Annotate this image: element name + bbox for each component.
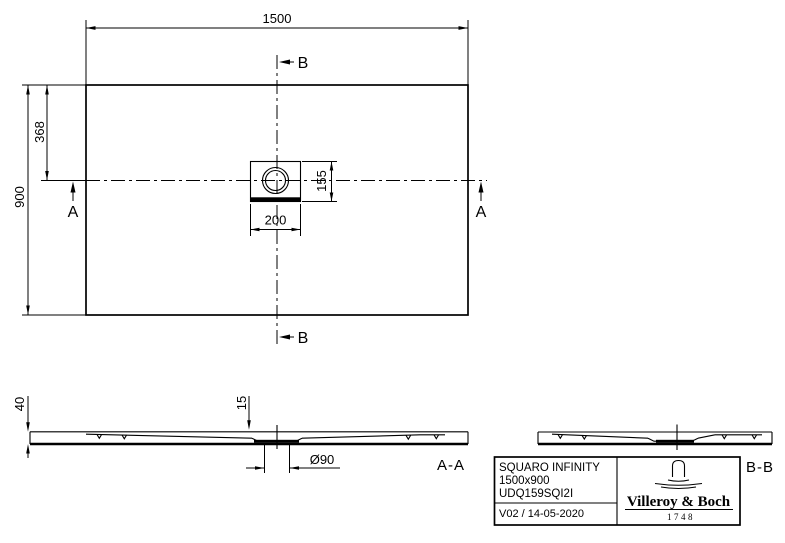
dim-d90-label: Ø90	[310, 452, 335, 467]
section-aa-view: 40 15 Ø90 A-A	[12, 396, 468, 474]
product-size: 1500x900	[499, 475, 550, 487]
dim-200-label: 200	[265, 213, 287, 228]
dim-15-label: 15	[234, 396, 249, 410]
brand-year: 1748	[667, 512, 695, 522]
dim-368: 368	[32, 85, 88, 181]
dim-40: 40	[12, 396, 30, 458]
dim-155-label: 155	[314, 170, 329, 192]
article-number: UDQ159SQI2I	[499, 488, 573, 500]
drain-recess-bar-bb	[656, 440, 694, 443]
dim-1500-label: 1500	[263, 11, 292, 26]
drawing-sheet: 1500 900 368 155	[0, 0, 785, 543]
drawing-svg: 1500 900 368 155	[0, 0, 785, 543]
dim-40-label: 40	[12, 397, 27, 411]
section-marker-b-bottom: B	[279, 330, 308, 347]
dim-200: 200	[251, 204, 301, 236]
logo-ripples-icon	[655, 480, 702, 489]
dim-155: 155	[302, 162, 337, 202]
dim-900-label: 900	[12, 186, 27, 208]
section-marker-a-left: A	[68, 182, 79, 222]
drain-channel-bar	[251, 197, 301, 201]
brand-name: Villeroy & Boch	[627, 494, 731, 510]
section-marker-a-right: A	[476, 182, 487, 222]
revision-date: V02 / 14-05-2020	[499, 508, 584, 520]
title-block: SQUARO INFINITY 1500x900 UDQ159SQI2I V02…	[495, 457, 741, 525]
drain-plan	[251, 162, 301, 202]
plan-view: 1500 900 368 155	[12, 11, 487, 347]
marker-b-top-label: B	[298, 55, 309, 72]
dim-d90: Ø90	[246, 445, 340, 473]
section-aa-label: A-A	[437, 457, 465, 474]
dim-368-label: 368	[32, 121, 47, 143]
brand-logo: Villeroy & Boch 1748	[625, 461, 733, 523]
dim-900: 900	[12, 85, 86, 315]
marker-a-right-label: A	[476, 204, 487, 221]
section-bb-profile	[538, 425, 772, 451]
dim-15: 15	[234, 396, 251, 430]
section-bb-label: B-B	[746, 459, 774, 476]
logo-arch-icon	[673, 461, 685, 478]
section-marker-b-top: B	[279, 55, 308, 72]
marker-b-bottom-label: B	[298, 330, 309, 347]
marker-a-left-label: A	[68, 204, 79, 221]
product-name: SQUARO INFINITY	[499, 462, 600, 474]
